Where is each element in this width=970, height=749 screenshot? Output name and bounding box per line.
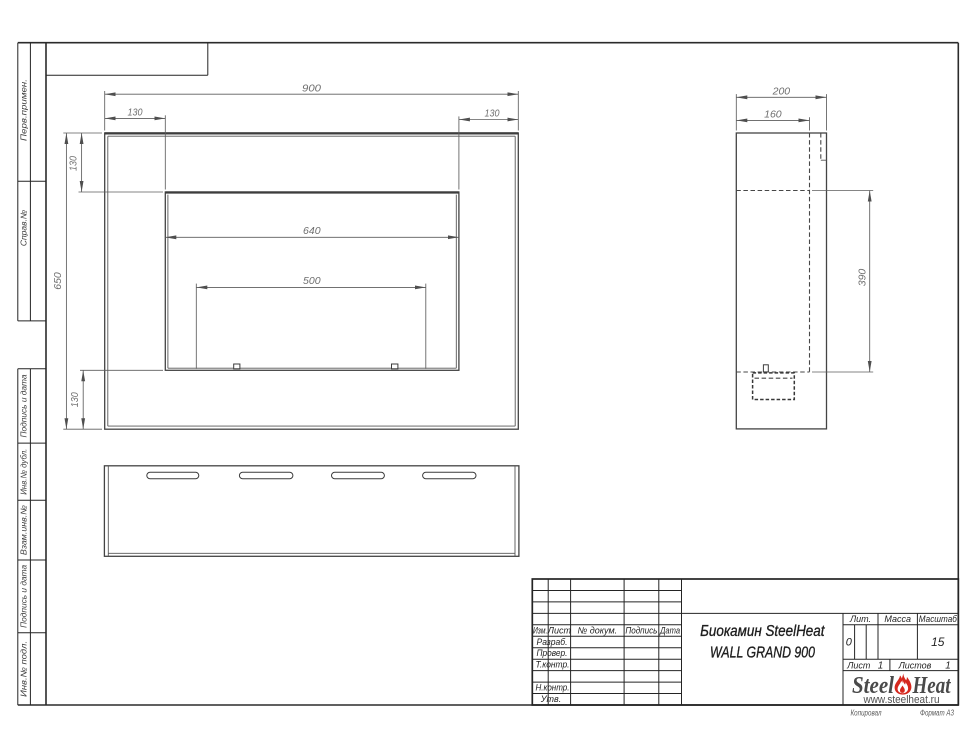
svg-text:Изм.: Изм. <box>533 625 548 635</box>
svg-text:500: 500 <box>303 275 321 287</box>
svg-text:650: 650 <box>52 272 64 290</box>
svg-text:130: 130 <box>68 156 80 171</box>
svg-text:640: 640 <box>303 225 321 237</box>
svg-text:Взам.инв.№: Взам.инв.№ <box>19 505 29 555</box>
svg-text:200: 200 <box>772 85 791 97</box>
svg-text:WALL GRAND 900: WALL GRAND 900 <box>710 645 815 662</box>
svg-text:15: 15 <box>931 635 945 649</box>
svg-text:Подпись и дата: Подпись и дата <box>19 565 29 628</box>
svg-text:Н.контр.: Н.контр. <box>536 683 570 693</box>
svg-text:Т.контр.: Т.контр. <box>536 660 570 670</box>
svg-text:Дата: Дата <box>659 625 680 635</box>
svg-text:Инв.№ подл.: Инв.№ подл. <box>19 641 29 697</box>
svg-text:Масштаб: Масштаб <box>919 614 958 624</box>
svg-text:130: 130 <box>485 108 500 120</box>
svg-text:1: 1 <box>878 660 883 671</box>
svg-text:Листов: Листов <box>898 660 932 670</box>
svg-text:390: 390 <box>857 269 869 287</box>
svg-text:Копировал: Копировал <box>851 709 882 718</box>
svg-text:Разраб.: Разраб. <box>537 637 568 647</box>
svg-text:Формат А3: Формат А3 <box>920 709 954 718</box>
svg-text:0: 0 <box>846 637 853 649</box>
svg-text:Лит.: Лит. <box>849 614 871 624</box>
svg-text:Лист: Лист <box>846 660 871 670</box>
svg-text:130: 130 <box>128 107 143 119</box>
svg-text:№ докум.: № докум. <box>577 625 617 635</box>
svg-text:Справ.№: Справ.№ <box>19 210 29 246</box>
svg-text:Провер.: Провер. <box>537 648 568 658</box>
svg-text:Инв.№ дубл.: Инв.№ дубл. <box>19 449 29 495</box>
svg-text:Подпись: Подпись <box>625 625 657 635</box>
svg-text:130: 130 <box>69 392 81 407</box>
svg-text:1: 1 <box>945 660 950 671</box>
svg-text:Подпись и дата: Подпись и дата <box>19 374 29 437</box>
svg-text:Масса: Масса <box>884 614 911 624</box>
svg-text:160: 160 <box>764 109 782 121</box>
svg-text:Утв.: Утв. <box>540 694 561 704</box>
svg-text:900: 900 <box>302 82 321 94</box>
svg-text:Лист: Лист <box>547 625 572 635</box>
svg-text:Биокамин SteelHeat: Биокамин SteelHeat <box>700 623 825 640</box>
svg-text:www.steelheat.ru: www.steelheat.ru <box>863 694 940 706</box>
svg-text:Перв.примен.: Перв.примен. <box>19 79 29 141</box>
